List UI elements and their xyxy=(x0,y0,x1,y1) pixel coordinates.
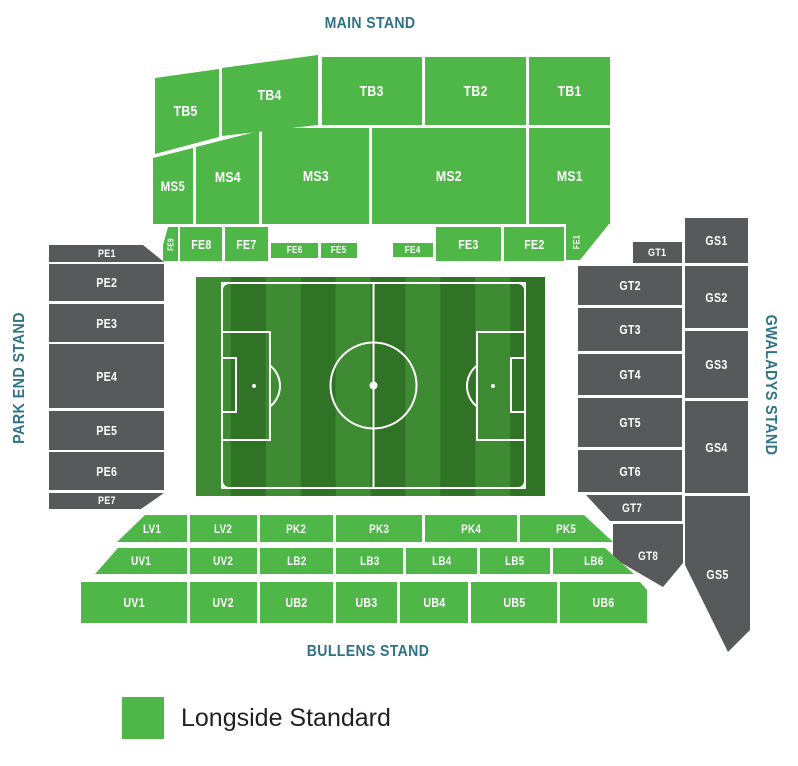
section-label-PK3: PK3 xyxy=(369,522,389,536)
section-PE1: PE1 xyxy=(49,245,164,262)
seating-map: MAIN STAND PARK END STAND GWALADYS STAND… xyxy=(0,0,798,766)
pitch-svg xyxy=(196,277,545,496)
section-label-LB5: LB5 xyxy=(505,554,524,568)
section-LB2[interactable]: LB2 xyxy=(260,548,333,574)
section-label-UB4: UB4 xyxy=(423,595,445,610)
section-label-PE4: PE4 xyxy=(96,369,117,384)
section-label-MS1: MS1 xyxy=(556,168,582,185)
section-GT3: GT3 xyxy=(578,308,682,351)
section-GT5: GT5 xyxy=(578,398,682,447)
section-GT7: GT7 xyxy=(583,495,682,521)
section-FE3[interactable]: FE3 xyxy=(436,227,501,261)
section-label-FE4: FE4 xyxy=(405,245,421,256)
section-PK3[interactable]: PK3 xyxy=(336,515,422,542)
section-label-FE6: FE6 xyxy=(287,245,303,256)
section-label-UB6: UB6 xyxy=(592,595,614,610)
legend: Longside Standard xyxy=(122,697,391,739)
section-TB5[interactable]: TB5 xyxy=(153,69,219,154)
section-UB4[interactable]: UB4 xyxy=(400,582,468,623)
section-label-LV1: LV1 xyxy=(143,522,161,536)
section-LB5[interactable]: LB5 xyxy=(480,548,550,574)
section-FE9[interactable]: FE9 xyxy=(163,227,178,261)
section-GT6: GT6 xyxy=(578,450,682,492)
section-FE8[interactable]: FE8 xyxy=(180,227,222,261)
section-label-UB2: UB2 xyxy=(285,595,307,610)
section-PE4: PE4 xyxy=(49,344,164,408)
section-label-GS5: GS5 xyxy=(706,567,728,582)
section-MS3[interactable]: MS3 xyxy=(262,128,369,224)
section-LV2[interactable]: LV2 xyxy=(190,515,257,542)
section-label-FE1: FE1 xyxy=(572,235,582,249)
section-GT4: GT4 xyxy=(578,354,682,395)
section-label-MS5: MS5 xyxy=(161,178,185,194)
stand-label-gwaladys-stand: GWALADYS STAND xyxy=(761,315,779,456)
section-MS5[interactable]: MS5 xyxy=(153,148,193,224)
section-PK5[interactable]: PK5 xyxy=(520,515,613,542)
section-GS4: GS4 xyxy=(685,401,748,493)
legend-label-longside-standard: Longside Standard xyxy=(181,704,391,733)
section-GT2: GT2 xyxy=(578,266,682,305)
section-LB3[interactable]: LB3 xyxy=(336,548,403,574)
section-PE7: PE7 xyxy=(49,493,164,509)
section-GS2: GS2 xyxy=(685,266,748,328)
section-label-GT3: GT3 xyxy=(619,322,640,337)
section-PE5: PE5 xyxy=(49,411,164,450)
section-UV1-upper[interactable]: UV1 xyxy=(95,548,187,574)
section-TB3[interactable]: TB3 xyxy=(322,57,422,125)
section-label-GT7: GT7 xyxy=(623,501,643,515)
pitch xyxy=(196,277,545,496)
section-label-PK2: PK2 xyxy=(287,522,307,536)
section-label-GT6: GT6 xyxy=(619,464,640,479)
section-GS1: GS1 xyxy=(685,218,748,263)
section-LV1[interactable]: LV1 xyxy=(117,515,187,542)
section-label-FE5: FE5 xyxy=(331,245,347,256)
section-UV2-upper[interactable]: UV2 xyxy=(190,548,257,574)
section-FE2[interactable]: FE2 xyxy=(504,227,564,261)
section-FE6[interactable]: FE6 xyxy=(271,243,318,258)
section-label-UV2-upper: UV2 xyxy=(214,554,234,568)
section-FE1[interactable]: FE1 xyxy=(566,224,609,260)
section-label-LB3: LB3 xyxy=(360,554,379,568)
section-PE2: PE2 xyxy=(49,264,164,301)
section-label-FE8: FE8 xyxy=(191,237,211,252)
section-label-MS2: MS2 xyxy=(436,168,462,185)
stand-label-park-end-stand: PARK END STAND xyxy=(11,312,29,444)
section-label-MS4: MS4 xyxy=(214,169,240,186)
section-label-GT4: GT4 xyxy=(619,367,640,382)
section-PE6: PE6 xyxy=(49,452,164,490)
section-UB2[interactable]: UB2 xyxy=(260,582,333,623)
section-label-FE2: FE2 xyxy=(524,237,544,252)
section-label-PE7: PE7 xyxy=(98,495,116,507)
section-label-PE3: PE3 xyxy=(96,316,117,331)
section-label-PE1: PE1 xyxy=(98,248,116,260)
section-label-LB6: LB6 xyxy=(584,554,603,568)
section-PE3: PE3 xyxy=(49,304,164,342)
section-TB2[interactable]: TB2 xyxy=(425,57,526,125)
section-MS4[interactable]: MS4 xyxy=(196,131,259,224)
section-label-TB5: TB5 xyxy=(174,103,198,120)
section-GS3: GS3 xyxy=(685,331,748,398)
section-label-FE7: FE7 xyxy=(236,237,256,252)
section-label-TB3: TB3 xyxy=(360,83,384,100)
section-TB1[interactable]: TB1 xyxy=(529,57,610,125)
section-TB4[interactable]: TB4 xyxy=(222,55,318,136)
section-label-UV1-lower: UV1 xyxy=(123,595,144,610)
section-label-UV1-upper: UV1 xyxy=(131,554,151,568)
section-UV1-lower[interactable]: UV1 xyxy=(81,582,187,623)
section-UV2-lower[interactable]: UV2 xyxy=(190,582,257,623)
section-UB3[interactable]: UB3 xyxy=(336,582,397,623)
section-label-PE5: PE5 xyxy=(96,423,117,438)
section-label-PE6: PE6 xyxy=(96,464,117,479)
section-label-GS2: GS2 xyxy=(705,290,727,305)
section-GT8: GT8 xyxy=(613,524,683,587)
section-label-TB2: TB2 xyxy=(464,83,488,100)
section-label-LB2: LB2 xyxy=(287,554,306,568)
section-FE7[interactable]: FE7 xyxy=(225,227,268,261)
section-label-LV2: LV2 xyxy=(214,522,232,536)
section-label-UB3: UB3 xyxy=(355,595,377,610)
section-LB4[interactable]: LB4 xyxy=(406,548,477,574)
section-label-TB1: TB1 xyxy=(558,83,582,100)
section-label-MS3: MS3 xyxy=(302,168,328,185)
section-GT1: GT1 xyxy=(633,242,682,263)
section-label-PE2: PE2 xyxy=(96,275,117,290)
section-PK2[interactable]: PK2 xyxy=(260,515,333,542)
section-label-GS4: GS4 xyxy=(705,440,727,455)
section-UB6[interactable]: UB6 xyxy=(560,582,647,623)
section-label-GS1: GS1 xyxy=(705,233,727,248)
section-label-FE9: FE9 xyxy=(166,238,175,251)
section-GS5: GS5 xyxy=(685,496,750,652)
section-label-GT1: GT1 xyxy=(648,247,666,259)
stand-label-bullens-stand: BULLENS STAND xyxy=(307,643,429,661)
section-label-PK4: PK4 xyxy=(461,522,481,536)
section-label-GT5: GT5 xyxy=(619,415,640,430)
section-UB5[interactable]: UB5 xyxy=(471,582,557,623)
section-PK4[interactable]: PK4 xyxy=(425,515,517,542)
section-label-GT2: GT2 xyxy=(619,278,640,293)
section-label-LB4: LB4 xyxy=(432,554,451,568)
section-FE4[interactable]: FE4 xyxy=(393,243,433,257)
section-label-GT8: GT8 xyxy=(638,549,658,563)
section-label-TB4: TB4 xyxy=(258,87,282,104)
legend-swatch-longside-standard xyxy=(122,697,164,739)
section-FE5[interactable]: FE5 xyxy=(321,243,357,258)
section-label-FE3: FE3 xyxy=(458,237,478,252)
section-label-GS3: GS3 xyxy=(705,357,727,372)
section-MS1[interactable]: MS1 xyxy=(529,128,610,224)
section-label-UB5: UB5 xyxy=(503,595,525,610)
stand-label-main-stand: MAIN STAND xyxy=(325,15,416,33)
section-label-UV2-lower: UV2 xyxy=(213,595,234,610)
section-label-PK5: PK5 xyxy=(557,522,577,536)
section-MS2[interactable]: MS2 xyxy=(372,128,526,224)
